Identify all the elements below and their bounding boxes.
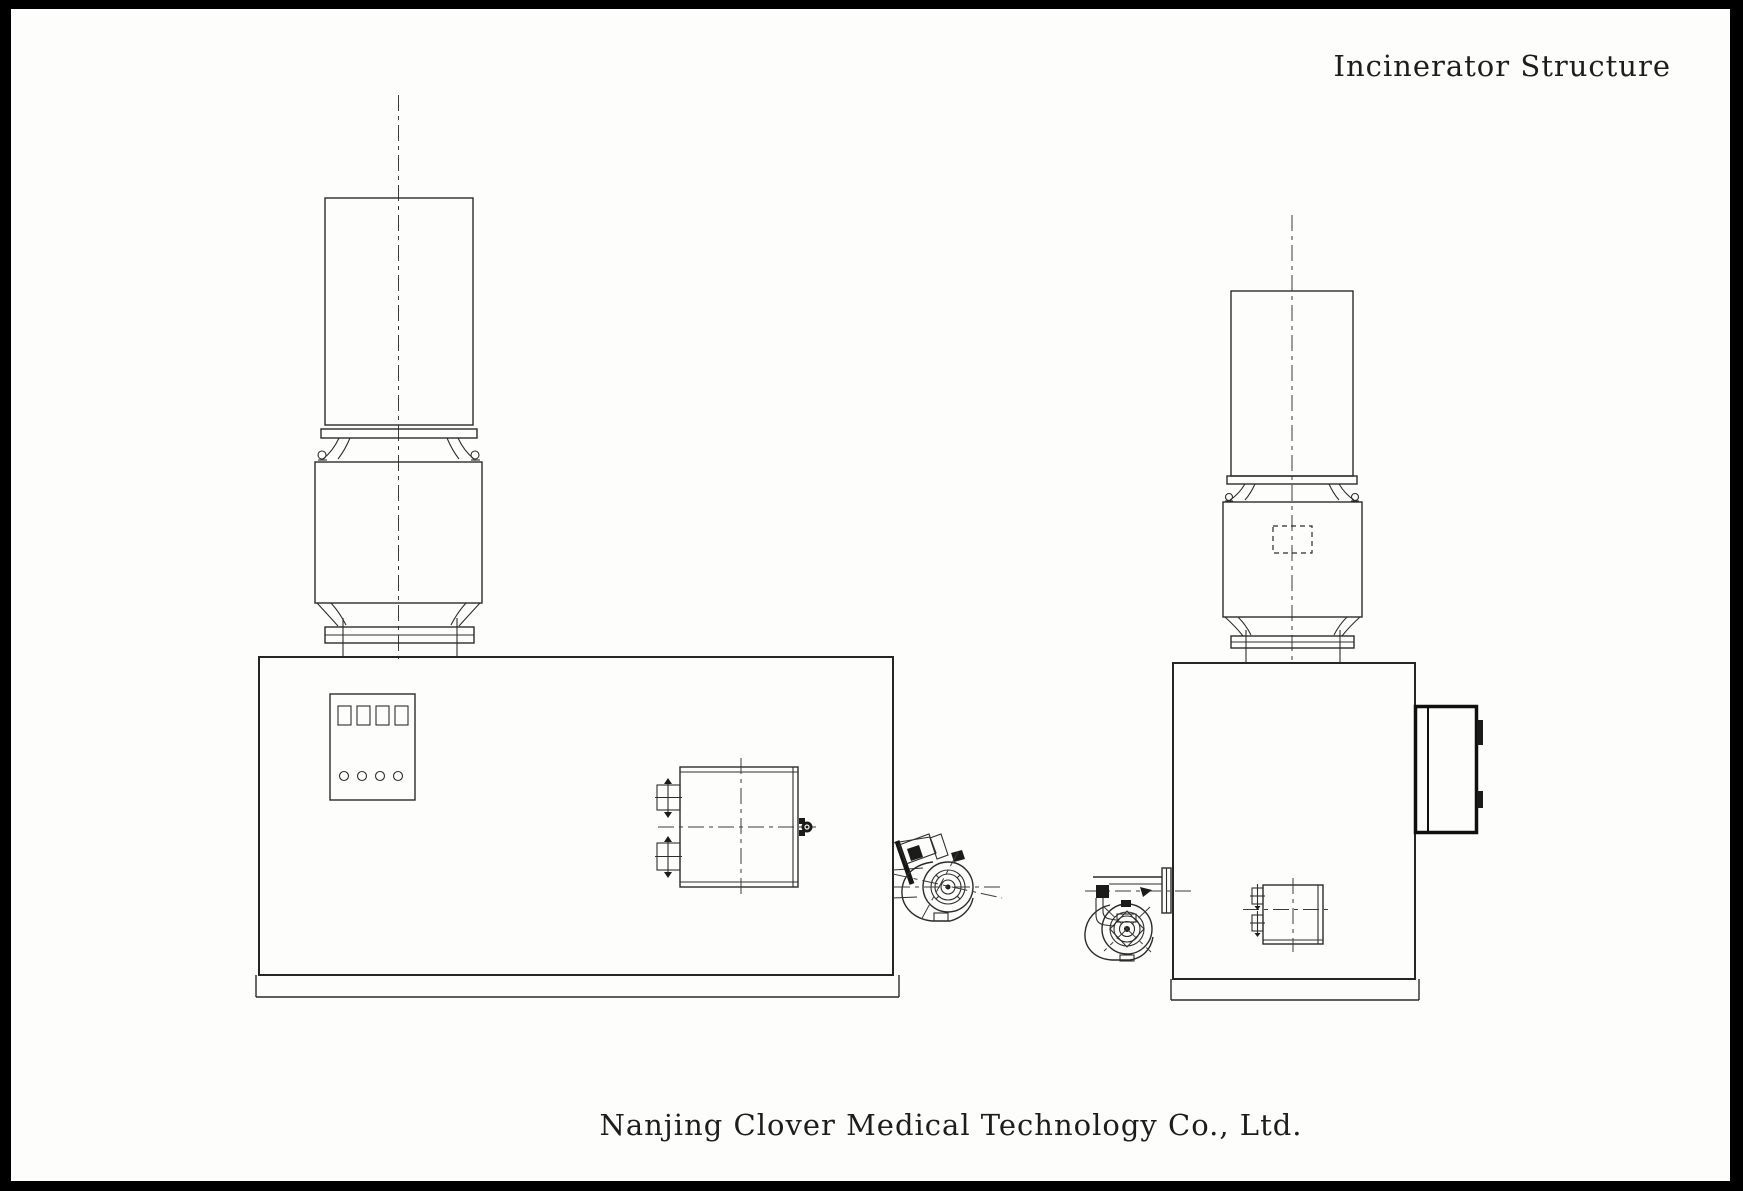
fuel-valve (1096, 885, 1109, 898)
feed-nozzle-lower (655, 836, 682, 878)
incinerator-technical-drawing (11, 9, 1731, 1181)
control-panel (330, 694, 415, 800)
blower-outlet (934, 913, 948, 921)
side-view (1085, 215, 1483, 1000)
front-burner-blower (893, 834, 1002, 922)
access-door (1416, 707, 1484, 833)
indicator-light (376, 772, 385, 781)
side-main-chamber (1173, 663, 1415, 979)
company-name: Nanjing Clover Medical Technology Co., L… (551, 1108, 1351, 1142)
fuel-tank (655, 758, 816, 896)
side-burner-blower (1085, 900, 1153, 961)
panel-switch (376, 706, 389, 725)
door-hinge (1477, 720, 1483, 745)
drawing-sheet: Incinerator Structure (11, 9, 1730, 1181)
page: { "header": { "title": "Incinerator Stru… (0, 0, 1743, 1191)
side-burner-assembly (1085, 868, 1192, 961)
panel-switch (395, 706, 408, 725)
indicator-light (358, 772, 367, 781)
indicator-light (340, 772, 349, 781)
blower-scroll-casing (902, 862, 973, 921)
door-hinge (1477, 791, 1483, 808)
feed-nozzle-upper (655, 778, 682, 818)
indicator-light (394, 772, 403, 781)
side-base-skid (1171, 979, 1419, 1000)
flow-arrow (1140, 887, 1152, 897)
panel-switch (338, 706, 351, 725)
front-view (256, 95, 1002, 997)
front-base-skid (256, 975, 899, 997)
side-fuel-box (1243, 878, 1331, 952)
panel-switch (357, 706, 370, 725)
